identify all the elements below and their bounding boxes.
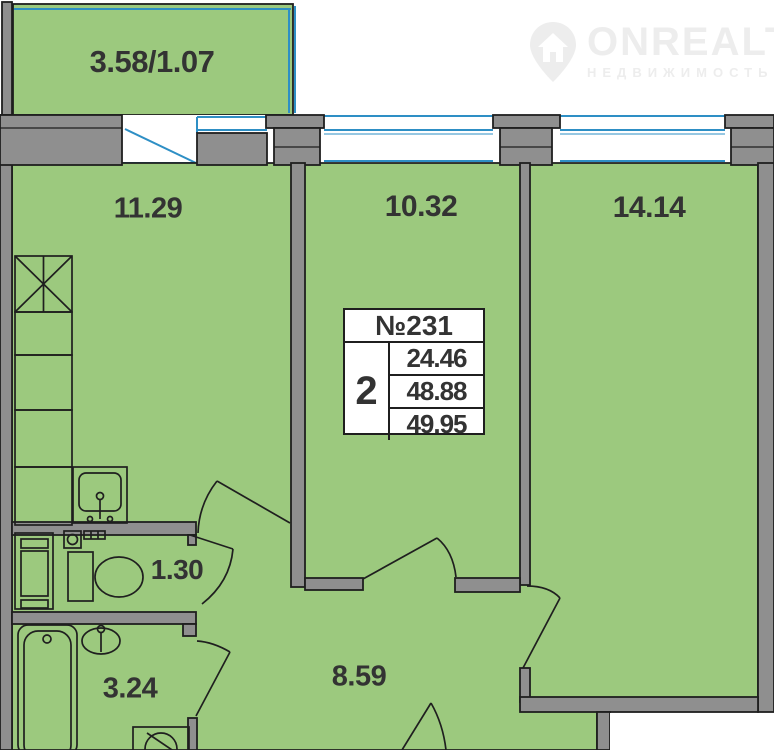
wall-bedroom1-bedroom2 [520,163,530,585]
wall-bedroom2-bottom [520,697,758,712]
wall-bathroom-stub-top [183,624,196,636]
window-band-bg [12,115,758,165]
wall-kitchen-bedroom1 [291,163,305,587]
room-label-kitchen-living: 11.29 [114,193,182,226]
wall-hall-right-bottom [597,712,610,750]
outside-cutout [610,713,774,750]
logo-pin-icon [527,20,579,84]
pier2-cap [493,115,560,128]
room-label-bedroom-small: 10.32 [385,190,458,224]
logo-subtitle: НЕДВИЖИМОСТЬ [587,65,774,80]
left-outer-wall [0,115,12,750]
room-label-balcony: 3.58/1.07 [90,44,215,80]
unit-rooms-count: 2 [345,343,390,440]
watermark-logo: ONREALT НЕДВИЖИМОСТЬ [527,20,774,84]
floor-plan: 3.58/1.07 11.29 10.32 14.14 1.30 3.24 8.… [0,0,774,750]
unit-number: №231 [345,310,483,343]
unit-area-total: 49.95 [390,409,483,440]
corner-pier-cap [725,115,774,128]
room-label-bathroom: 3.24 [103,673,157,706]
wall-hall-bedroom1-right [455,578,520,592]
room-label-wc: 1.30 [151,554,204,586]
room-label-bedroom-large: 14.14 [613,191,686,225]
wall-hall-bedroom1-left [305,578,363,590]
room-label-hallway: 8.59 [332,661,386,694]
pier1-cap [266,115,324,128]
logo-text: ONREALT НЕДВИЖИМОСТЬ [587,20,774,80]
wall-wc-bathroom [12,612,196,624]
unit-info-card: №231 2 24.46 48.88 49.95 [343,308,485,435]
window-band [12,115,758,165]
balcony-left-wall [2,2,12,115]
unit-area-main: 48.88 [390,374,483,409]
right-outer-wall [758,163,774,712]
top-wall-left-chunk [0,115,122,165]
unit-area-living: 24.46 [390,343,483,374]
logo-brand: ONREALT [587,20,774,64]
knee-wall-under-window [197,133,267,165]
